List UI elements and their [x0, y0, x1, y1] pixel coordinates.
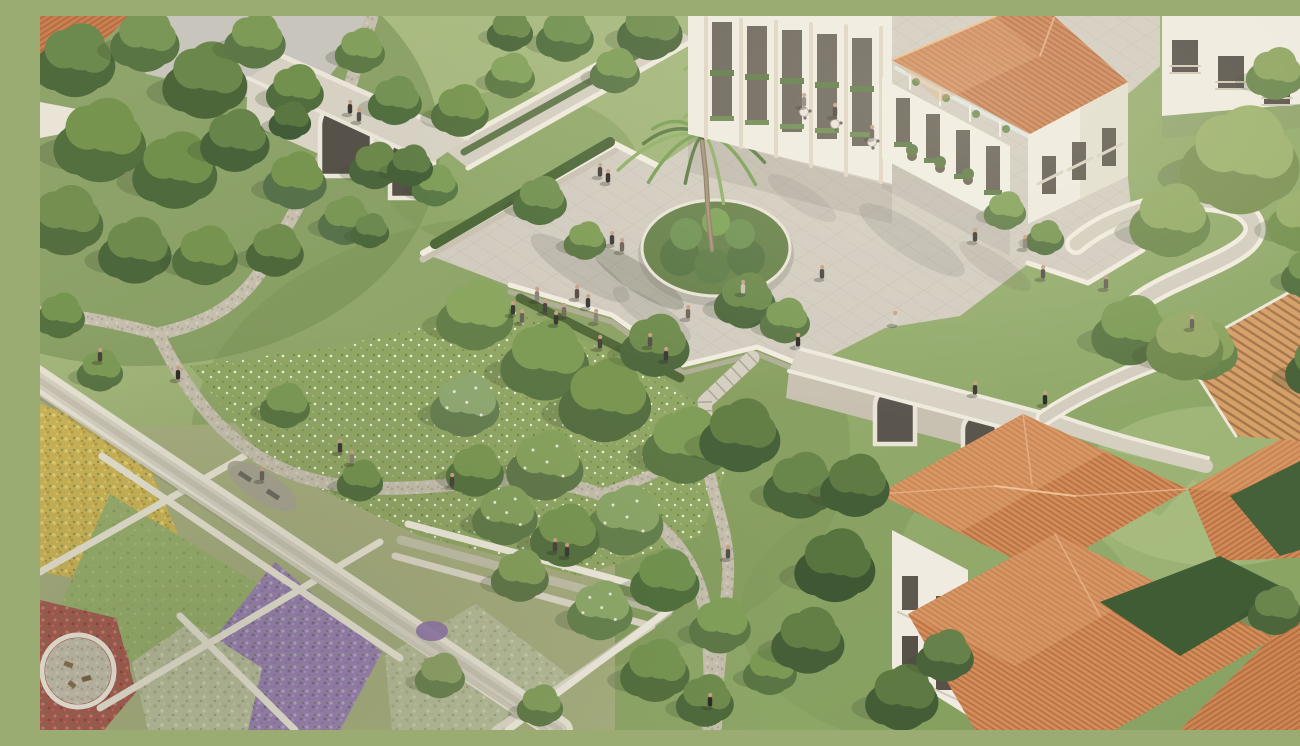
architectural-aerial-rendering: Aerial rendering of Mediterranean resort… — [40, 16, 1300, 730]
light-overlays — [40, 16, 1300, 730]
scene-layers — [40, 16, 1300, 730]
light-overlay — [40, 16, 1300, 730]
rendering-canvas: Aerial rendering of Mediterranean resort… — [40, 16, 1300, 730]
